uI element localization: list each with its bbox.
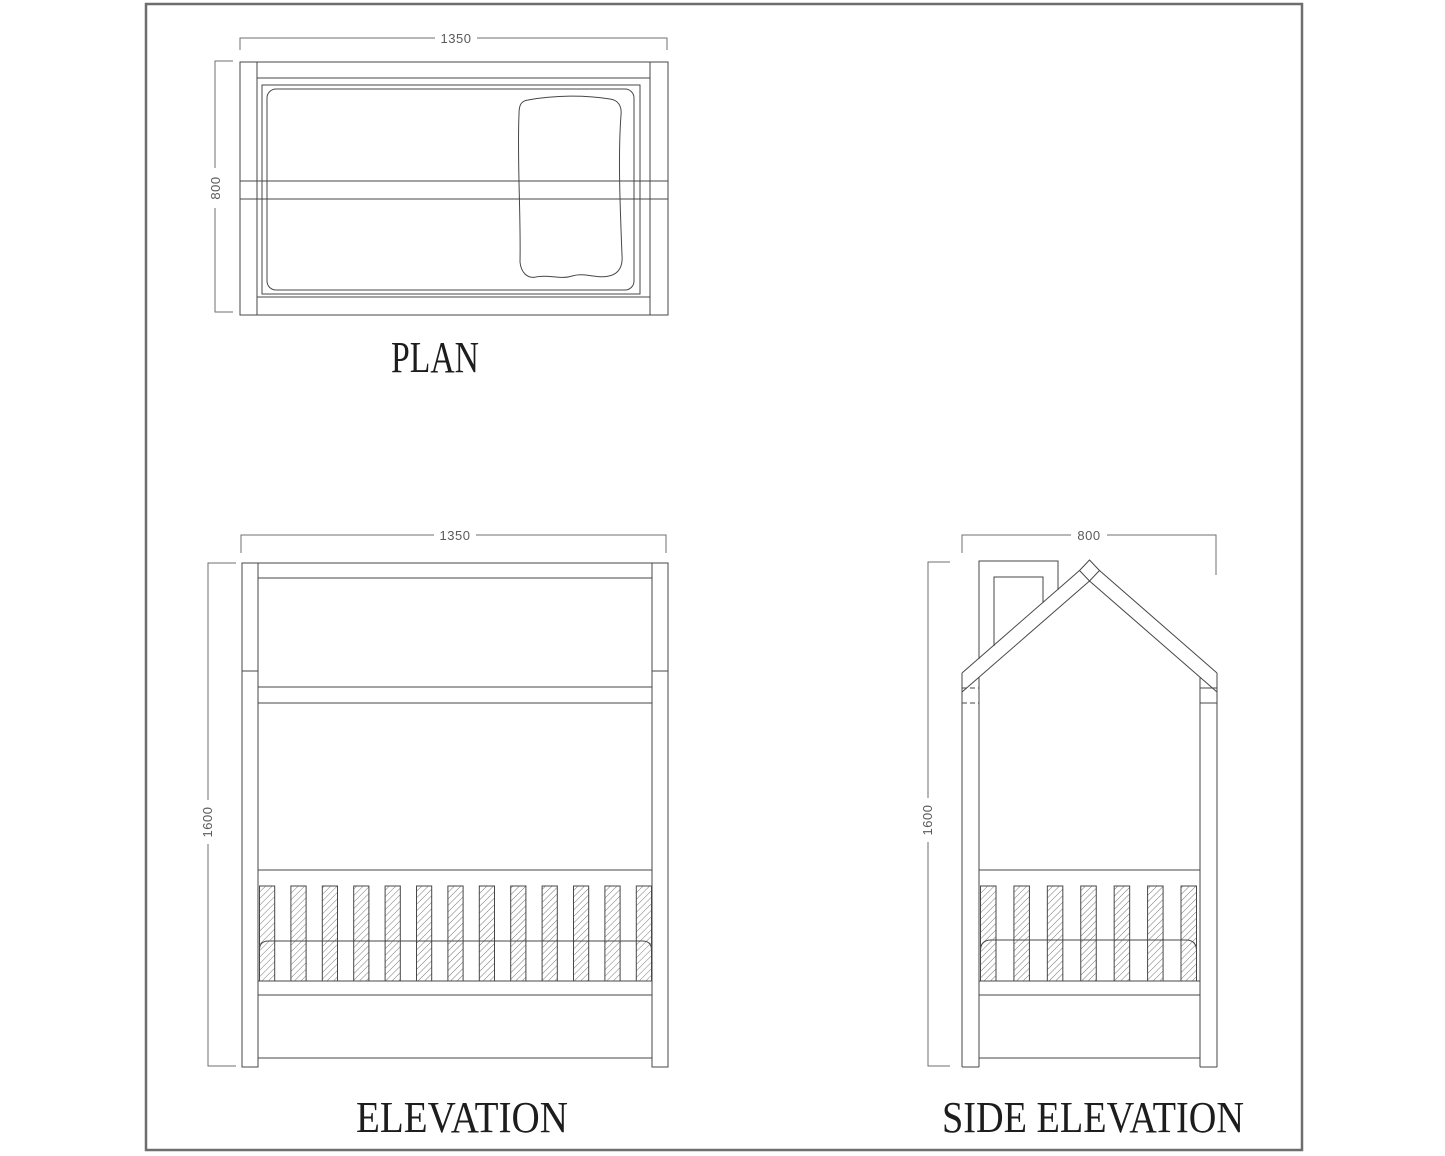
plan-mattress-rounded-outline <box>267 89 634 290</box>
hatched-slat <box>574 886 589 981</box>
plan-view: 1350 800 PLAN <box>208 30 668 382</box>
hatched-slat <box>1181 886 1197 981</box>
hatched-slat <box>1114 886 1130 981</box>
hatched-slat <box>448 886 463 981</box>
roof-right-outer-edge <box>1100 571 1218 674</box>
elevation-left-post <box>242 563 258 1067</box>
hatched-slat <box>385 886 400 981</box>
elevation-right-post <box>652 563 668 1067</box>
roof-left-inner-edge <box>962 581 1090 692</box>
side-dim-height-text: 1600 <box>920 805 935 836</box>
plan-dim-width-text: 1350 <box>441 31 472 46</box>
elevation-base-rail-lines <box>258 981 652 1058</box>
plan-label: PLAN <box>391 333 479 382</box>
elevation-dim-height-text: 1600 <box>200 807 215 838</box>
hatched-slat <box>605 886 620 981</box>
hatched-slat <box>417 886 432 981</box>
chimney-inner-outline <box>994 577 1043 646</box>
plan-end-rail-lines <box>257 78 650 297</box>
roof-apex-diamond <box>1080 560 1100 581</box>
side-base-rail-lines <box>979 981 1200 1058</box>
hatched-slat <box>291 886 306 981</box>
drawing-sheet: 1350 800 PLAN 1350 1600 <box>0 0 1445 1156</box>
hatched-slat <box>1014 886 1029 981</box>
hatched-slat <box>1081 886 1097 981</box>
plan-dim-height-text: 800 <box>208 176 223 199</box>
hatched-slat <box>636 886 651 981</box>
hatched-slat <box>354 886 369 981</box>
side-right-post <box>1200 673 1217 1067</box>
hatched-slat <box>322 886 337 981</box>
hatched-slat <box>260 886 275 981</box>
elevation-head-rail-lines <box>258 687 652 703</box>
hatched-slat <box>1148 886 1164 981</box>
chimney-outer-outline <box>979 561 1058 659</box>
roof-right-inner-edge <box>1090 581 1218 692</box>
side-dim-width-text: 800 <box>1077 528 1100 543</box>
plan-mattress-rect <box>262 85 640 294</box>
side-elevation-slats <box>981 886 1197 981</box>
elevation-view: 1350 1600 ELEVATION <box>200 527 668 1142</box>
hatched-slat <box>1047 886 1063 981</box>
hatched-slat <box>542 886 557 981</box>
hatched-slat <box>479 886 494 981</box>
plan-side-post-lines <box>257 62 650 315</box>
pillow-outline <box>518 96 622 277</box>
elevation-dim-width-text: 1350 <box>440 528 471 543</box>
elevation-label: ELEVATION <box>356 1093 568 1142</box>
hatched-slat <box>511 886 526 981</box>
plan-cross-rail-lines <box>240 181 668 199</box>
side-elevation-label: SIDE ELEVATION <box>942 1093 1244 1142</box>
roof-left-outer-edge <box>962 571 1080 674</box>
elevation-slats <box>260 886 652 981</box>
side-elevation-view: 800 1600 SIDE ELEVATION <box>920 527 1244 1142</box>
hatched-slat <box>981 886 997 981</box>
side-left-post <box>962 673 979 1067</box>
